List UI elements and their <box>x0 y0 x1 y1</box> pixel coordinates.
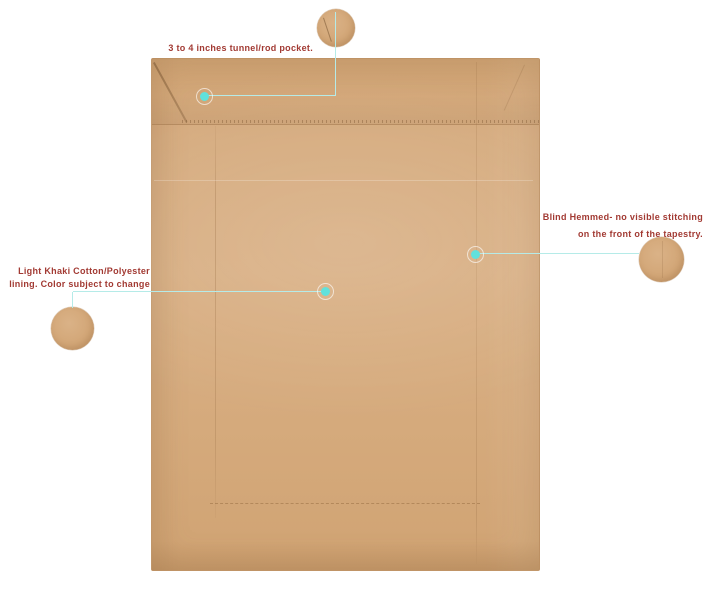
zigzag-stitch-line <box>182 120 539 123</box>
lining-annotation-line2: lining. Color subject to change <box>9 278 150 291</box>
rod-pocket-annotation: 3 to 4 inches tunnel/rod pocket. <box>168 43 313 53</box>
lining-detail-swatch <box>51 307 94 350</box>
vertical-crease-left <box>215 126 216 518</box>
lining-hotspot-dot[interactable] <box>317 283 334 300</box>
bottom-wrinkle-shading <box>152 536 539 570</box>
tapestry-photo <box>151 58 540 571</box>
hotspot-dot-icon <box>200 92 209 101</box>
rod-pocket-leader-line-v <box>335 12 336 96</box>
bottom-hem-stitch-line <box>210 503 480 504</box>
product-annotation-view: 3 to 4 inches tunnel/rod pocket. Blind H… <box>0 0 706 600</box>
lining-leader-line-v <box>72 292 73 308</box>
rod-pocket-hotspot-dot[interactable] <box>196 88 213 105</box>
lining-annotation-line1: Light Khaki Cotton/Polyester <box>9 265 150 278</box>
blind-hem-detail-swatch <box>639 237 684 282</box>
swatch-crease-line <box>662 241 663 279</box>
rod-pocket-annotation-text: 3 to 4 inches tunnel/rod pocket. <box>168 43 313 53</box>
hotspot-dot-icon <box>321 287 330 296</box>
blind-hem-annotation-line2: on the front of the tapestry. <box>543 226 703 243</box>
hotspot-dot-icon <box>471 250 480 259</box>
horizontal-crease <box>154 180 533 181</box>
rod-pocket-detail-swatch <box>317 9 355 47</box>
blind-hem-hotspot-dot[interactable] <box>467 246 484 263</box>
blind-hem-leader-line <box>475 253 639 254</box>
swatch-fold-line <box>323 18 332 42</box>
blind-hem-annotation: Blind Hemmed- no visible stitching on th… <box>543 209 703 242</box>
vertical-crease-right <box>476 62 477 564</box>
lining-annotation: Light Khaki Cotton/Polyester lining. Col… <box>9 265 150 290</box>
blind-hem-annotation-line1: Blind Hemmed- no visible stitching <box>543 209 703 226</box>
lining-leader-line-h <box>73 291 325 292</box>
rod-pocket-leader-line-h <box>204 95 336 96</box>
